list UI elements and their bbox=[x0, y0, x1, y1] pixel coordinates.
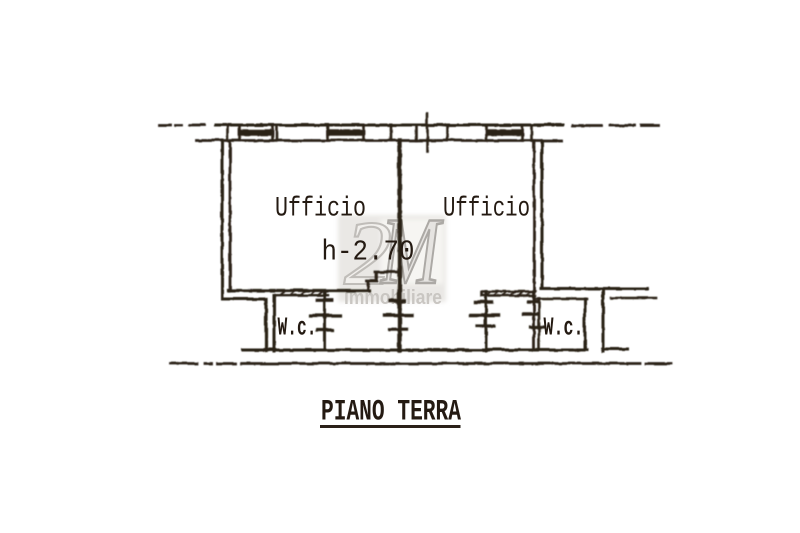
svg-text:Ufficio: Ufficio bbox=[275, 194, 366, 225]
svg-text:W.c.: W.c. bbox=[278, 313, 317, 343]
svg-text:Ufficio: Ufficio bbox=[443, 194, 530, 225]
svg-text:W.c.: W.c. bbox=[544, 313, 584, 343]
svg-text:PIANO TERRA: PIANO TERRA bbox=[321, 396, 461, 430]
svg-text:h-2.70: h-2.70 bbox=[322, 236, 415, 269]
